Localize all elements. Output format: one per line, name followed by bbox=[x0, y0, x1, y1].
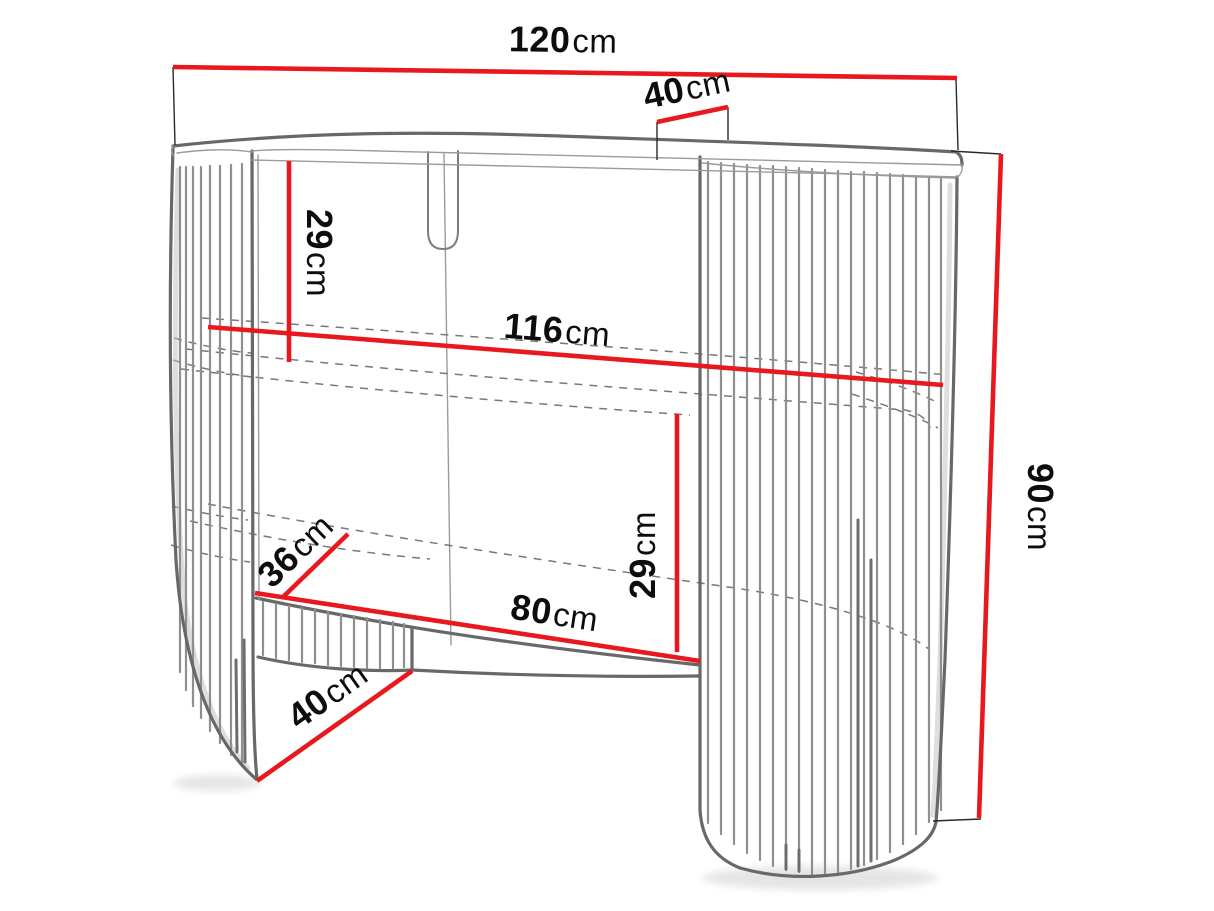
dimension-line-opening-width bbox=[255, 593, 700, 661]
dimension-diagram: 120cm 40cm 29cm 116cm 90cm 36cm 29cm 80c… bbox=[0, 0, 1214, 911]
label-top-to-shelf-value: 29 bbox=[299, 209, 340, 250]
leader-90-bottom bbox=[933, 819, 981, 821]
label-shelf-to-base-unit: cm bbox=[625, 511, 662, 556]
shelf-bottom-edge-dashed bbox=[181, 369, 690, 415]
label-total-height-unit: cm bbox=[1021, 506, 1058, 551]
label-top-depth-unit: cm bbox=[682, 61, 734, 107]
base-platform bbox=[171, 504, 930, 676]
label-shelf-width: 116cm bbox=[502, 305, 611, 354]
right-pedestal bbox=[700, 157, 957, 876]
label-top-width: 120cm bbox=[509, 18, 618, 61]
left-pedestal-inner-edge-thickness bbox=[258, 155, 259, 600]
label-opening-width-value: 80 bbox=[508, 586, 555, 633]
label-top-to-shelf-unit: cm bbox=[300, 252, 337, 297]
dimension-line-top-width bbox=[173, 67, 957, 78]
back-panel bbox=[428, 151, 458, 645]
cable-slot-cutout bbox=[428, 151, 458, 249]
left-pedestal-inner-edge bbox=[252, 151, 257, 779]
base-top-front-edge bbox=[256, 598, 700, 665]
label-top-to-shelf: 29cm bbox=[299, 209, 340, 297]
shelf-front-edge-dashed bbox=[186, 349, 930, 428]
label-total-height-value: 90 bbox=[1020, 463, 1061, 504]
label-top-depth-value: 40 bbox=[639, 68, 688, 117]
base-bottom-front-edge bbox=[412, 670, 700, 676]
leader-120-right bbox=[956, 79, 958, 150]
back-panel-seam bbox=[444, 154, 451, 645]
label-shelf-width-value: 116 bbox=[502, 305, 565, 351]
left-pedestal-shadow bbox=[173, 775, 261, 791]
shelf-arc-left2-dashed bbox=[173, 360, 251, 377]
label-top-width-unit: cm bbox=[572, 22, 618, 60]
top-right-cap-bottom bbox=[958, 165, 962, 177]
top-right-end-cap bbox=[956, 152, 962, 165]
floor-shadows bbox=[173, 775, 938, 890]
label-shelf-width-unit: cm bbox=[564, 313, 612, 353]
left-pedestal-slats bbox=[180, 164, 245, 765]
label-shelf-to-base: 29cm bbox=[622, 511, 663, 599]
label-base-depth: 36cm bbox=[249, 505, 341, 596]
right-pedestal-slats bbox=[708, 162, 941, 874]
label-total-height: 90cm bbox=[1020, 463, 1061, 551]
dimension-line-total-height bbox=[979, 154, 1001, 818]
label-top-width-value: 120 bbox=[509, 18, 571, 60]
label-shelf-to-base-value: 29 bbox=[622, 558, 663, 599]
leader-120-left bbox=[173, 67, 175, 145]
label-opening-width-unit: cm bbox=[551, 595, 601, 638]
right-pedestal-shadow bbox=[702, 866, 938, 890]
left-pedestal-top-rim bbox=[177, 150, 252, 153]
label-opening-width: 80cm bbox=[508, 586, 601, 640]
left-pedestal bbox=[170, 148, 259, 779]
